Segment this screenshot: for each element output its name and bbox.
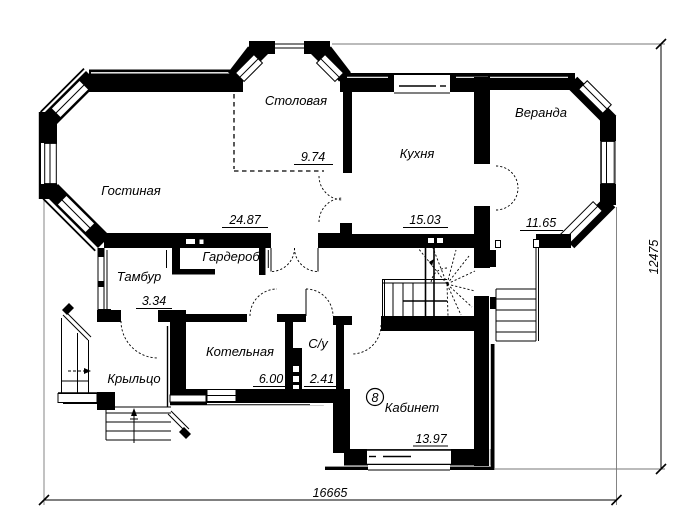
svg-text:24.87: 24.87 xyxy=(228,213,261,227)
svg-text:Столовая: Столовая xyxy=(265,93,327,108)
svg-text:Кабинет: Кабинет xyxy=(385,400,440,415)
svg-text:Веранда: Веранда xyxy=(515,105,567,120)
svg-text:8: 8 xyxy=(372,391,379,405)
svg-text:Гостиная: Гостиная xyxy=(101,183,161,198)
svg-text:6.00: 6.00 xyxy=(259,372,283,386)
svg-text:2.41: 2.41 xyxy=(309,372,334,386)
svg-text:Кухня: Кухня xyxy=(400,146,435,161)
svg-text:15.03: 15.03 xyxy=(409,213,440,227)
svg-text:Гардероб: Гардероб xyxy=(202,249,260,264)
svg-text:16665: 16665 xyxy=(313,486,348,500)
svg-text:12475: 12475 xyxy=(647,240,661,275)
svg-text:3.34: 3.34 xyxy=(142,294,166,308)
svg-text:Крыльцо: Крыльцо xyxy=(107,371,160,386)
svg-text:С/у: С/у xyxy=(308,336,329,351)
svg-text:9.74: 9.74 xyxy=(301,150,325,164)
svg-text:Тамбур: Тамбур xyxy=(117,269,162,284)
svg-text:Котельная: Котельная xyxy=(206,344,274,359)
svg-text:11.65: 11.65 xyxy=(526,216,556,230)
svg-text:13.97: 13.97 xyxy=(415,432,447,446)
